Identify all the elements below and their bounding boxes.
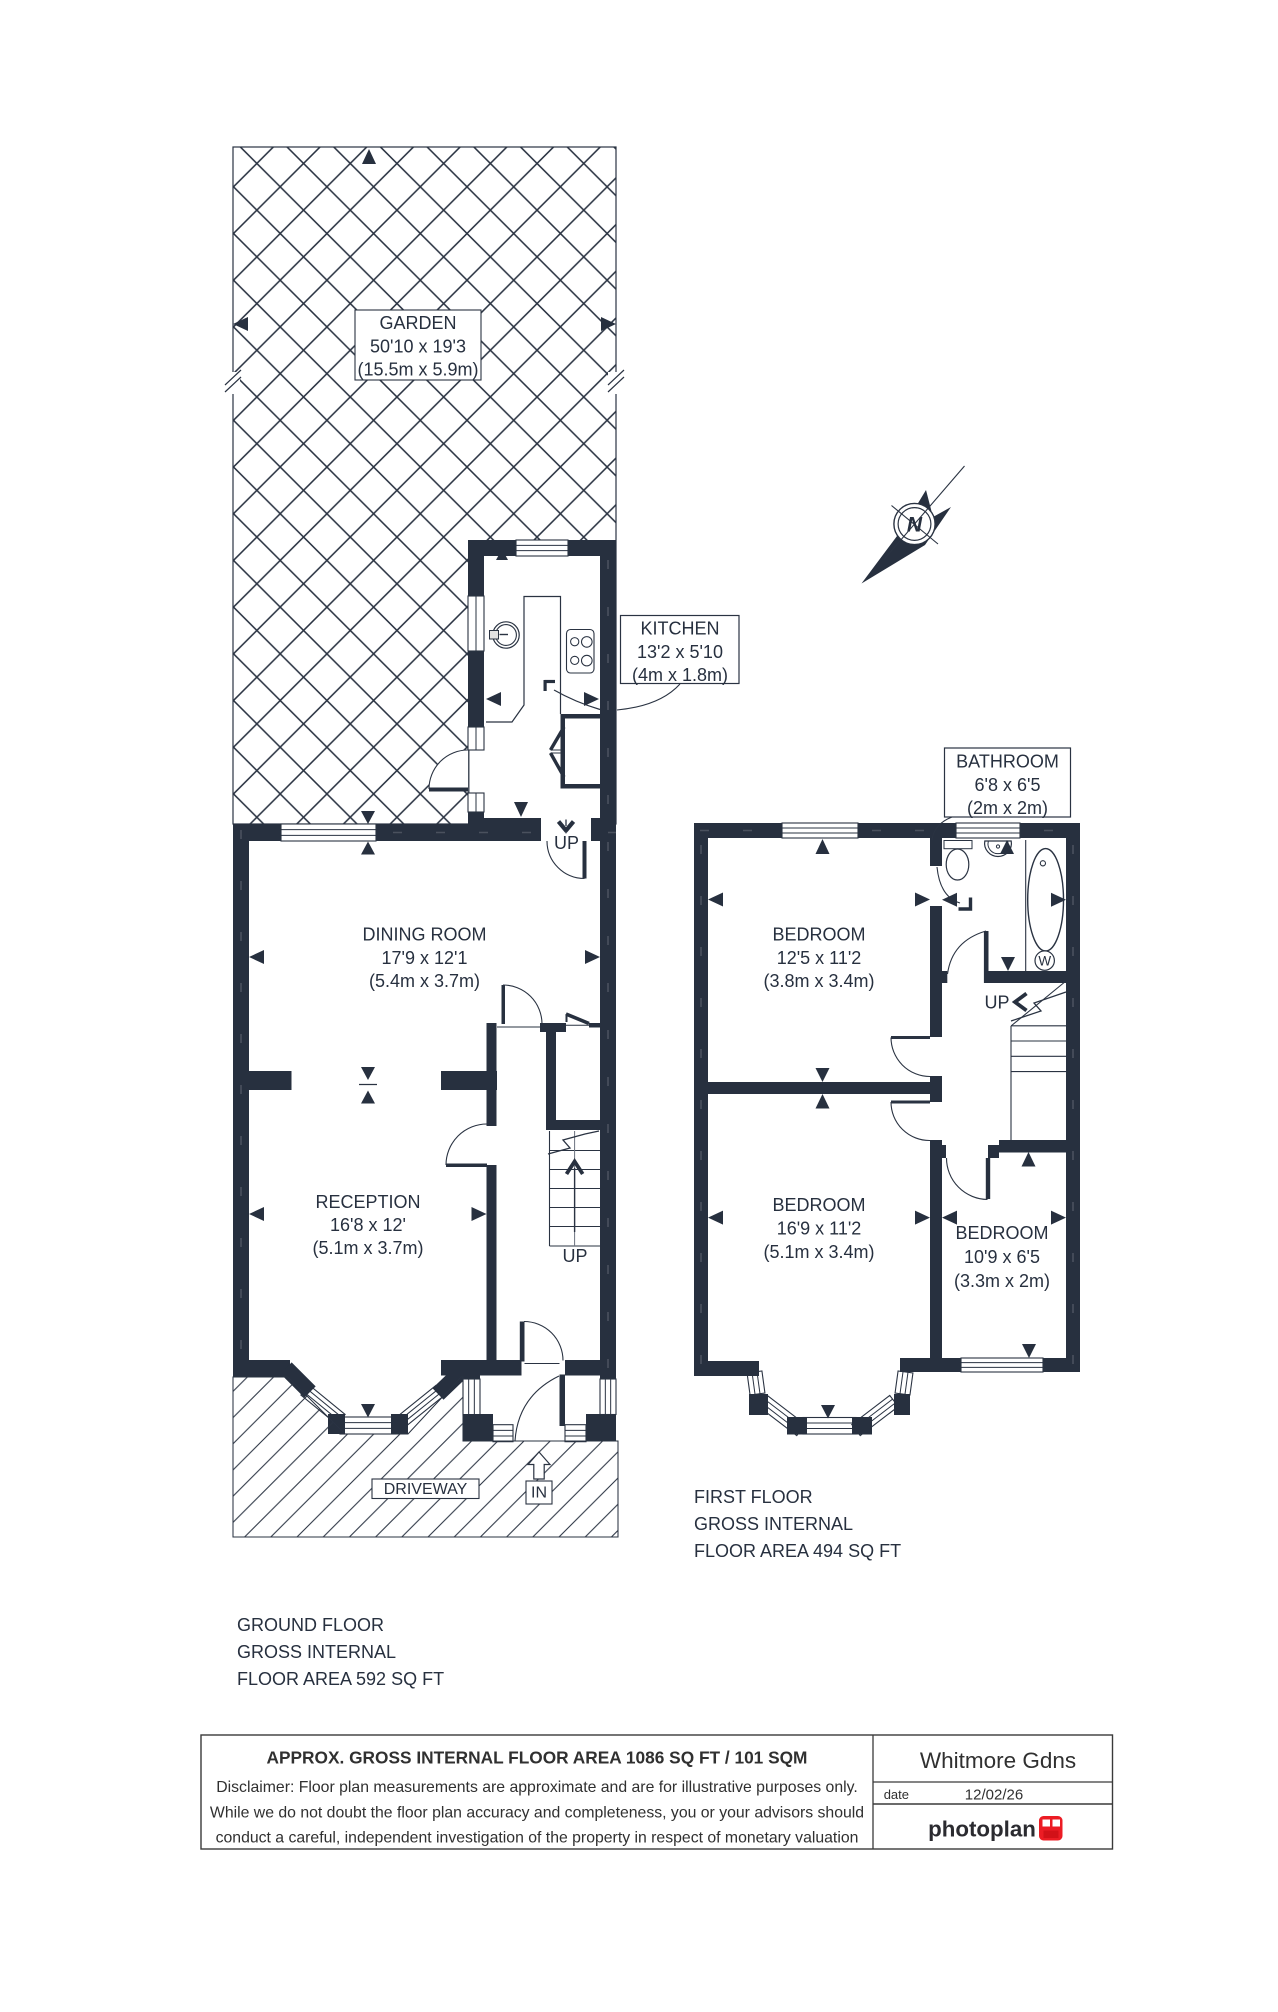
svg-text:(5.4m x 3.7m): (5.4m x 3.7m) <box>369 971 480 991</box>
svg-text:While we do not doubt the floo: While we do not doubt the floor plan acc… <box>210 1805 864 1822</box>
svg-text:GROSS INTERNAL: GROSS INTERNAL <box>237 1642 396 1662</box>
svg-text:FLOOR AREA 592 SQ FT: FLOOR AREA 592 SQ FT <box>237 1669 444 1689</box>
svg-text:BEDROOM: BEDROOM <box>772 1195 865 1215</box>
svg-text:GARDEN: GARDEN <box>379 313 456 333</box>
svg-text:FLOOR AREA 494 SQ FT: FLOOR AREA 494 SQ FT <box>694 1541 901 1561</box>
svg-text:W: W <box>1038 954 1051 969</box>
svg-text:photoplan: photoplan <box>928 1817 1036 1842</box>
svg-text:UP: UP <box>554 833 579 853</box>
svg-text:(5.1m x 3.7m): (5.1m x 3.7m) <box>312 1238 423 1258</box>
svg-text:(2m x 2m): (2m x 2m) <box>967 798 1048 818</box>
svg-text:6'8 x 6'5: 6'8 x 6'5 <box>975 775 1041 795</box>
svg-text:(3.3m x 2m): (3.3m x 2m) <box>954 1271 1050 1291</box>
svg-text:UP: UP <box>562 1246 587 1266</box>
svg-text:GROUND FLOOR: GROUND FLOOR <box>237 1615 384 1635</box>
svg-text:GROSS INTERNAL: GROSS INTERNAL <box>694 1514 853 1534</box>
svg-text:50'10 x 19'3: 50'10 x 19'3 <box>370 336 466 356</box>
svg-text:date: date <box>884 1787 909 1802</box>
svg-text:12'5 x 11'2: 12'5 x 11'2 <box>777 948 862 968</box>
svg-text:APPROX. GROSS INTERNAL FLOOR A: APPROX. GROSS INTERNAL FLOOR AREA 1086 S… <box>267 1748 808 1768</box>
svg-text:(15.5m x 5.9m): (15.5m x 5.9m) <box>357 360 478 380</box>
svg-text:(3.8m x 3.4m): (3.8m x 3.4m) <box>763 971 874 991</box>
svg-text:17'9 x 12'1: 17'9 x 12'1 <box>382 948 468 968</box>
svg-text:FIRST FLOOR: FIRST FLOOR <box>694 1487 813 1507</box>
svg-text:UP: UP <box>984 993 1009 1013</box>
svg-text:(5.1m x 3.4m): (5.1m x 3.4m) <box>763 1242 874 1262</box>
svg-text:16'8 x 12': 16'8 x 12' <box>330 1215 406 1235</box>
svg-text:BEDROOM: BEDROOM <box>955 1223 1048 1243</box>
svg-text:N: N <box>907 514 923 537</box>
svg-text:RECEPTION: RECEPTION <box>315 1192 420 1212</box>
svg-text:12/02/26: 12/02/26 <box>965 1787 1023 1804</box>
svg-text:conduct a careful, independent: conduct a careful, independent investiga… <box>216 1830 859 1847</box>
svg-text:DRIVEWAY: DRIVEWAY <box>384 1481 468 1498</box>
svg-text:IN: IN <box>531 1485 547 1502</box>
svg-text:(4m x 1.8m): (4m x 1.8m) <box>632 665 728 685</box>
svg-text:BATHROOM: BATHROOM <box>956 752 1059 772</box>
svg-text:Whitmore Gdns: Whitmore Gdns <box>920 1748 1076 1773</box>
svg-text:DINING ROOM: DINING ROOM <box>363 925 487 945</box>
svg-text:BEDROOM: BEDROOM <box>772 925 865 945</box>
svg-text:KITCHEN: KITCHEN <box>640 619 719 639</box>
svg-text:13'2 x 5'10: 13'2 x 5'10 <box>637 642 723 662</box>
svg-text:10'9 x 6'5: 10'9 x 6'5 <box>964 1247 1040 1267</box>
svg-text:16'9 x 11'2: 16'9 x 11'2 <box>777 1219 862 1239</box>
svg-text:Disclaimer: Floor plan measure: Disclaimer: Floor plan measurements are … <box>216 1779 858 1796</box>
